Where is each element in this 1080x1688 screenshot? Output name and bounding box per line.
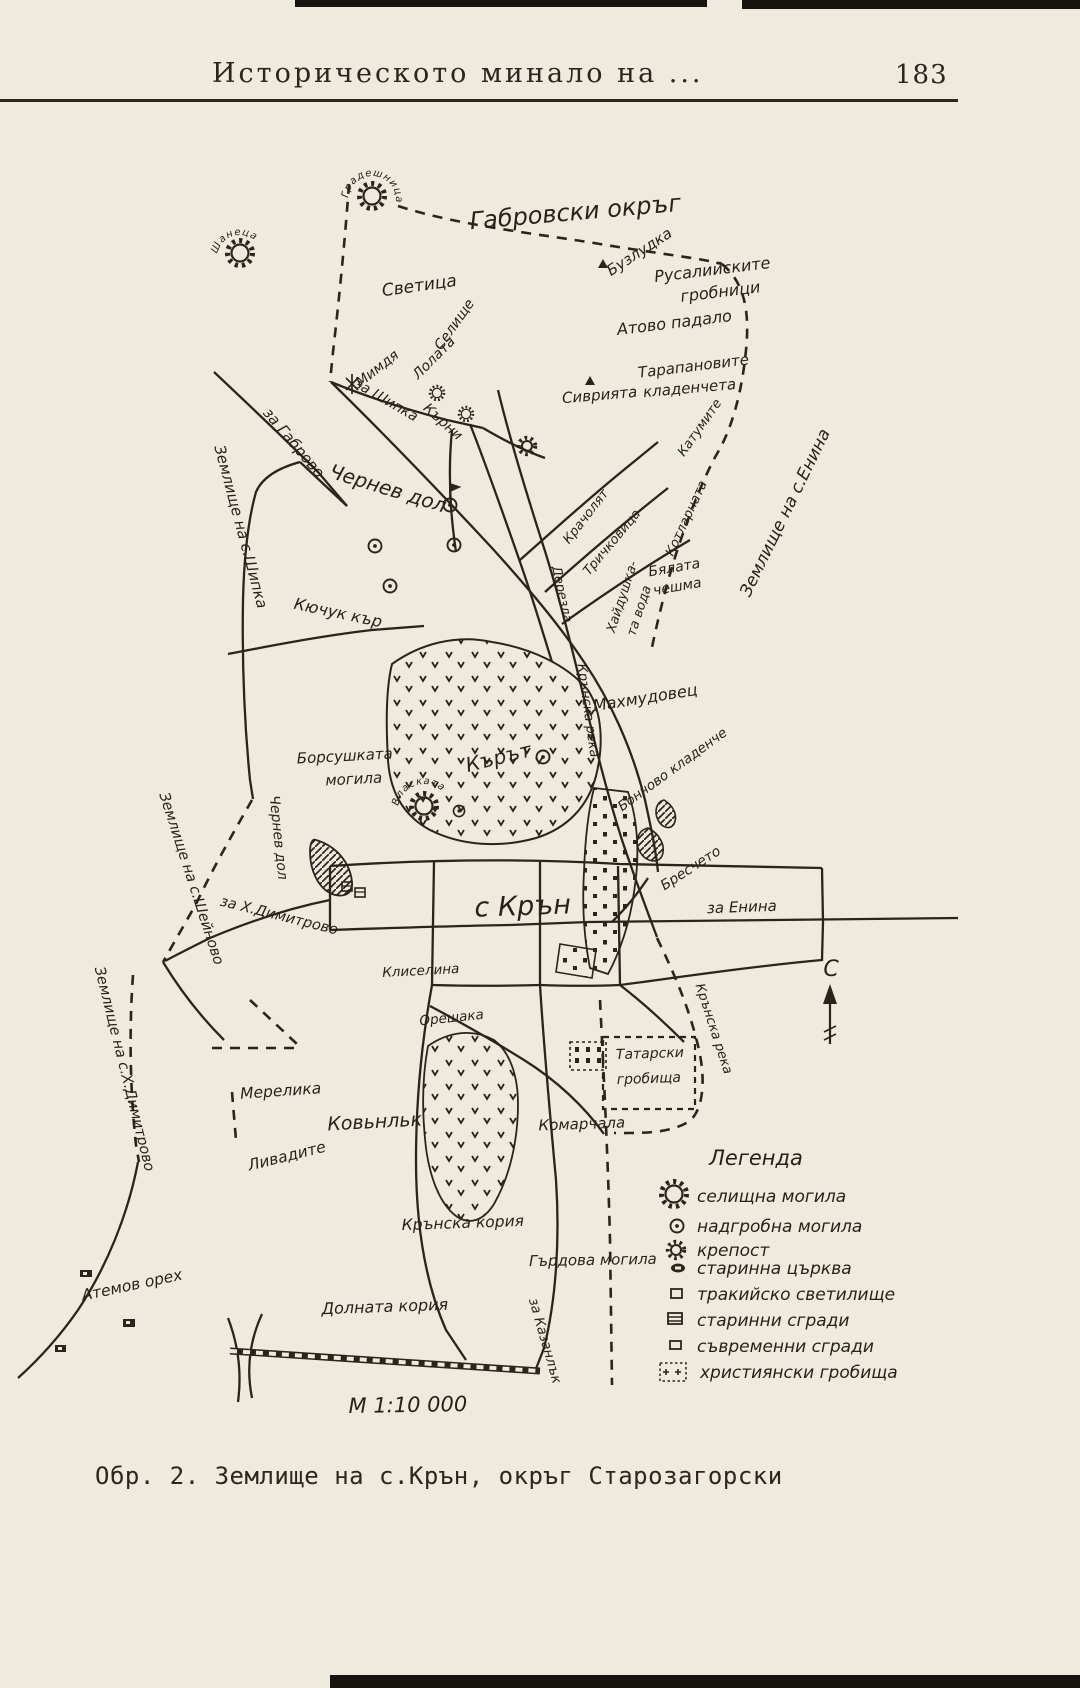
map-label: Кючук кър: [292, 594, 384, 631]
compass: [823, 984, 837, 1044]
compass-label: С: [823, 957, 839, 982]
map-label: за Габрово: [259, 404, 328, 481]
legend-item-label: тракийско светилище: [697, 1285, 895, 1305]
map-label: Землище на с.Х.Димитрово: [91, 965, 157, 1173]
christian-cemetery-icon: [570, 1042, 606, 1070]
map-label: Ливадите: [245, 1138, 328, 1175]
map-label: Сиврията: [561, 383, 638, 407]
settlement-mound-icon: [430, 386, 444, 400]
legend-fortress-icon: [668, 1242, 684, 1258]
forest-areas: [387, 639, 638, 1221]
map-label: Крънска кория: [401, 1212, 524, 1234]
settlement-mound-icon: [228, 241, 253, 266]
krun-territory-map: Габровски окръг Бузлудка Русалийските гр…: [0, 0, 1080, 1688]
map-label: Татарски: [616, 1045, 685, 1063]
map-label: Бресчето: [658, 843, 724, 894]
burial-mound-icon: [369, 540, 382, 553]
map-label: Землище на с.Енина: [736, 426, 835, 600]
legend-item-label: старинна църква: [697, 1259, 852, 1279]
settlement-mound-icon: [459, 407, 473, 421]
legend-settlement-mound-icon: [662, 1182, 687, 1207]
legend-title: Легенда: [708, 1146, 803, 1170]
village-name-label: с Крън: [474, 889, 571, 923]
legend-old-church-icon: [671, 1264, 685, 1273]
map-label: Комарчала: [538, 1113, 625, 1134]
map-label: Землище на с.Шипка: [210, 443, 271, 610]
legend-burial-mound-icon: [671, 1220, 684, 1233]
figure-caption: Обр. 2. Землище на с.Крън, окръг Староза…: [95, 1462, 783, 1490]
legend-item-label: крепост: [697, 1241, 770, 1261]
map-label: Ковьнльк: [327, 1109, 423, 1136]
map-label: Чернев дол: [327, 459, 450, 517]
fortress-icon: [519, 438, 535, 454]
scanned-page: Историческото минало на ... 183: [0, 0, 1080, 1688]
map-label: Борсушката: [296, 745, 393, 768]
map-label: Клиселина: [382, 961, 460, 981]
map-legend: Легенда селищна могила надгробна могила …: [660, 1146, 898, 1383]
map-label: Атемов орех: [79, 1265, 185, 1304]
map-label: Махмудовец: [591, 680, 698, 715]
map-label: Мерелика: [240, 1079, 322, 1103]
scale-text: М 1:10 000: [348, 1392, 467, 1418]
map-label: могила: [325, 769, 383, 790]
legend-item-label: старинни сгради: [697, 1311, 849, 1331]
legend-old-buildings-icon: [668, 1313, 682, 1324]
map-label: Котларната: [663, 478, 711, 558]
map-label: Атово падало: [615, 306, 733, 339]
map-label: за Шипка: [351, 376, 420, 425]
railway: [230, 1351, 540, 1371]
settlement-mound-icon: [360, 184, 385, 209]
map-label: за Енина: [707, 897, 778, 917]
map-label: Землище на с.Шейново: [155, 791, 226, 967]
map-label: Бончово кладенче: [615, 725, 730, 815]
legend-christian-cemetery-icon: [660, 1363, 686, 1381]
legend-item-label: съвременни сгради: [697, 1337, 874, 1357]
legend-item-label: селищна могила: [697, 1187, 846, 1207]
map-label: Крънска река: [692, 982, 735, 1076]
map-label: Габровски окръг: [469, 189, 683, 235]
peak-triangle-icon: [585, 376, 595, 385]
map-label: за Х.Димитрово: [218, 894, 339, 939]
burial-mound-icon: [384, 580, 397, 593]
map-label: Долната кория: [320, 1295, 449, 1318]
legend-thracian-sanctuary-icon: [671, 1289, 682, 1298]
map-label: Светица: [381, 271, 458, 301]
legend-modern-buildings-icon: [670, 1341, 681, 1349]
legend-item-label: надгробна могила: [697, 1217, 862, 1237]
map-label: Гърдова могила: [529, 1250, 657, 1270]
map-label: Дерезла: [548, 564, 575, 624]
legend-item-label: християнски гробища: [699, 1363, 898, 1383]
map-label: гробища: [616, 1070, 681, 1088]
map-label: Чернев дол: [266, 795, 291, 881]
roads-and-streams: [18, 372, 958, 1402]
